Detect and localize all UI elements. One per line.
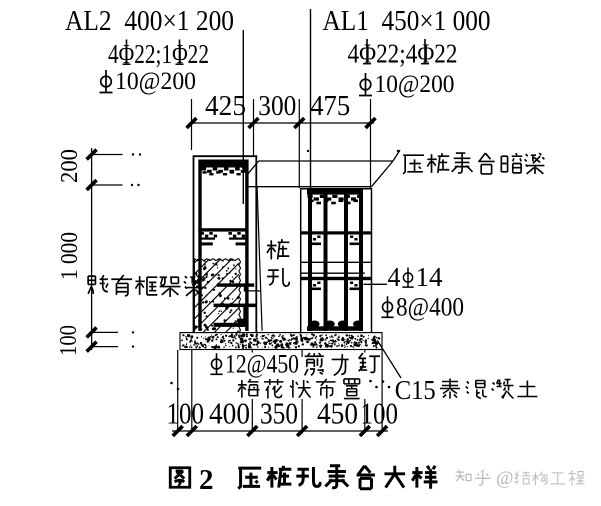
svg-text:AL2 400×1 200: AL2 400×1 200 (65, 6, 234, 37)
svg-text:400: 400 (209, 397, 250, 431)
svg-text:8@400: 8@400 (396, 293, 464, 322)
svg-text:350: 350 (260, 397, 298, 431)
svg-text:AL1 450×1 000: AL1 450×1 000 (323, 6, 491, 37)
svg-text:200: 200 (57, 149, 83, 183)
svg-text:1 000: 1 000 (57, 232, 83, 280)
svg-text:300: 300 (258, 91, 296, 122)
svg-text:100: 100 (56, 325, 82, 356)
svg-text:2: 2 (199, 464, 214, 496)
svg-text:450: 450 (317, 397, 358, 431)
svg-text:10@200: 10@200 (375, 71, 455, 98)
svg-text:100: 100 (167, 397, 205, 431)
svg-text:10@200: 10@200 (115, 68, 196, 95)
svg-text:100: 100 (361, 397, 399, 431)
svg-text:C15: C15 (395, 375, 436, 405)
svg-text:475: 475 (310, 91, 350, 122)
svg-text:425: 425 (205, 91, 246, 122)
svg-text:4: 4 (388, 262, 401, 292)
svg-text:14: 14 (416, 262, 444, 292)
svg-text:12@450: 12@450 (225, 350, 299, 379)
svg-text:@: @ (496, 468, 514, 489)
